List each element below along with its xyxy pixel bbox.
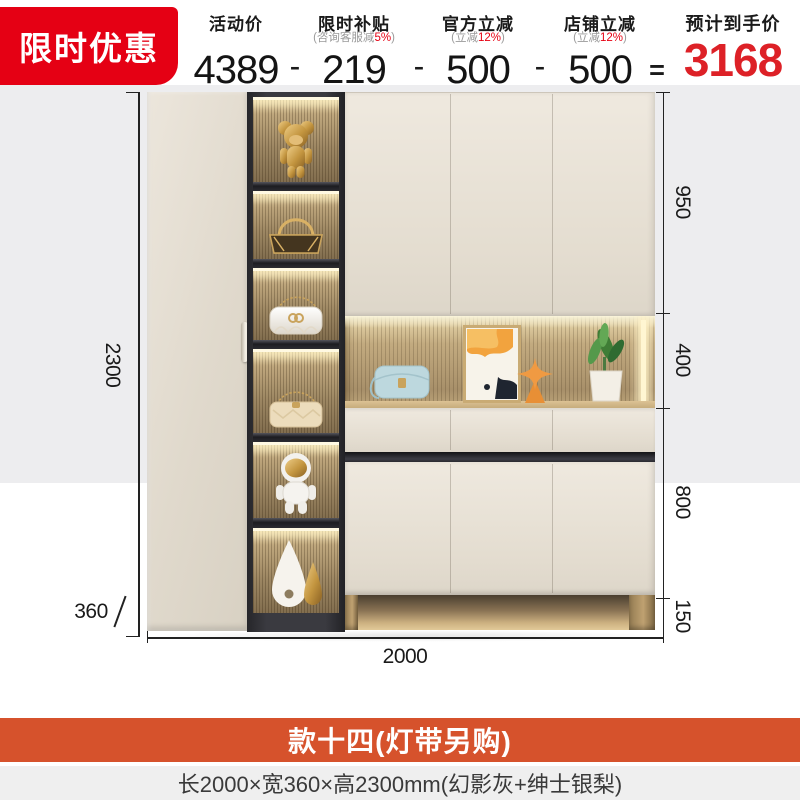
spec-strip: 长2000×宽360×高2300mm(幻影灰+绅士银梨) (0, 766, 800, 800)
shelf-divider (253, 182, 339, 191)
height-dim-tick-top (126, 92, 139, 94)
minus-operator: - (535, 48, 546, 85)
shelf-compartment-5 (253, 442, 339, 518)
price-col-official: 官方立减 (立减12%) 500 (442, 10, 514, 90)
led-strip (253, 528, 339, 531)
display-column (247, 92, 345, 632)
official-discount-sub: (立减12%) (442, 31, 514, 46)
shelf-divider (253, 259, 339, 268)
left-tall-door (147, 92, 248, 631)
shelf-divider (253, 433, 339, 442)
segment-400-label: 400 (669, 338, 695, 382)
cabinet-base (345, 595, 655, 630)
store-discount-sub: (立减12%) (564, 31, 636, 46)
drawer-seam (552, 410, 553, 450)
drawer-seam (450, 410, 451, 450)
equals-operator: = (649, 55, 665, 86)
astronaut-figurine (273, 451, 319, 515)
height-dim-line (138, 92, 140, 637)
final-price-value: 3168 (684, 37, 782, 83)
shelf-divider (253, 518, 339, 528)
drawer-row (345, 408, 655, 452)
badge-label: 限时优惠 (19, 22, 159, 70)
price-col-subsidy: 限时补贴 (咨询客服减5%) 219 (313, 10, 395, 90)
right-dim-line (663, 92, 665, 637)
activity-price-value: 4389 (194, 50, 279, 90)
white-and-gold-vases (268, 538, 324, 610)
subsidy-value: 219 (313, 50, 395, 90)
style-title: 款十四(灯带另购) (288, 720, 512, 760)
store-discount-value: 500 (564, 50, 636, 90)
beige-chain-bag (267, 386, 325, 430)
subsidy-label: 限时补贴 (313, 10, 395, 31)
handle-groove (345, 452, 655, 462)
official-discount-label: 官方立减 (442, 10, 514, 31)
base-leg-right (629, 595, 655, 630)
height-dim-tick-bottom (126, 636, 139, 638)
door-seam (552, 94, 553, 314)
minus-operator: - (290, 48, 301, 85)
shelf-compartment-1 (253, 97, 339, 182)
height-dim-label: 2300 (99, 343, 125, 387)
door-seam (552, 464, 553, 593)
subsidy-sub: (咨询客服减5%) (313, 31, 395, 46)
activity-price-label: 活动价 (194, 10, 279, 31)
minus-operator: - (414, 48, 425, 85)
price-col-activity: 活动价 4389 (194, 10, 279, 90)
final-price-label: 预计到手价 (684, 10, 782, 31)
depth-dim-label: 360 (68, 599, 114, 625)
door-seam (450, 464, 451, 593)
base-leg-left (345, 595, 358, 630)
shelf-compartment-6 (253, 528, 339, 613)
orange-star-ornament (507, 358, 563, 404)
depth-dim-slash (113, 596, 126, 628)
blue-handbag (367, 352, 437, 402)
white-gg-bag (266, 293, 326, 337)
right-dim-tick-1 (656, 313, 670, 315)
gold-handbag (264, 210, 328, 256)
door-seam (450, 94, 451, 314)
store-discount-label: 店铺立减 (564, 10, 636, 31)
display-niche (345, 316, 655, 408)
led-strip (253, 97, 339, 100)
right-cabinet-section (345, 92, 655, 630)
gold-bear-figurine (274, 117, 318, 179)
shelf-divider (253, 340, 339, 349)
potted-plant (573, 319, 637, 403)
right-dim-tick-3 (656, 598, 670, 600)
led-strip (253, 349, 339, 352)
led-strip (253, 268, 339, 271)
shelf-compartment-3 (253, 268, 339, 340)
segment-150-label: 150 (669, 594, 695, 638)
niche-led-strip (641, 320, 646, 402)
product-card: 限时优惠 活动价 4389 - 限时补贴 (咨询客服减5%) 219 - 官方立… (0, 0, 800, 800)
shelf-compartment-4 (253, 349, 339, 433)
official-discount-value: 500 (442, 50, 514, 90)
floor-shadow (147, 630, 663, 642)
shelf-compartment-2 (253, 191, 339, 259)
width-dim-label: 2000 (375, 644, 435, 670)
style-title-banner: 款十四(灯带另购) (0, 718, 800, 762)
limited-offer-badge: 限时优惠 (0, 7, 178, 85)
led-strip (253, 442, 339, 445)
right-dim-tick-0 (656, 92, 670, 94)
spec-text: 长2000×宽360×高2300mm(幻影灰+绅士银梨) (178, 767, 622, 799)
lower-doors (345, 462, 655, 595)
upper-doors (345, 92, 655, 317)
price-col-store: 店铺立减 (立减12%) 500 (564, 10, 636, 90)
led-strip (253, 191, 339, 194)
cabinet-render (147, 92, 655, 637)
price-col-final: 预计到手价 3168 (684, 10, 782, 83)
segment-800-label: 800 (669, 480, 695, 524)
segment-950-label: 950 (669, 180, 695, 224)
right-dim-tick-2 (656, 408, 670, 410)
